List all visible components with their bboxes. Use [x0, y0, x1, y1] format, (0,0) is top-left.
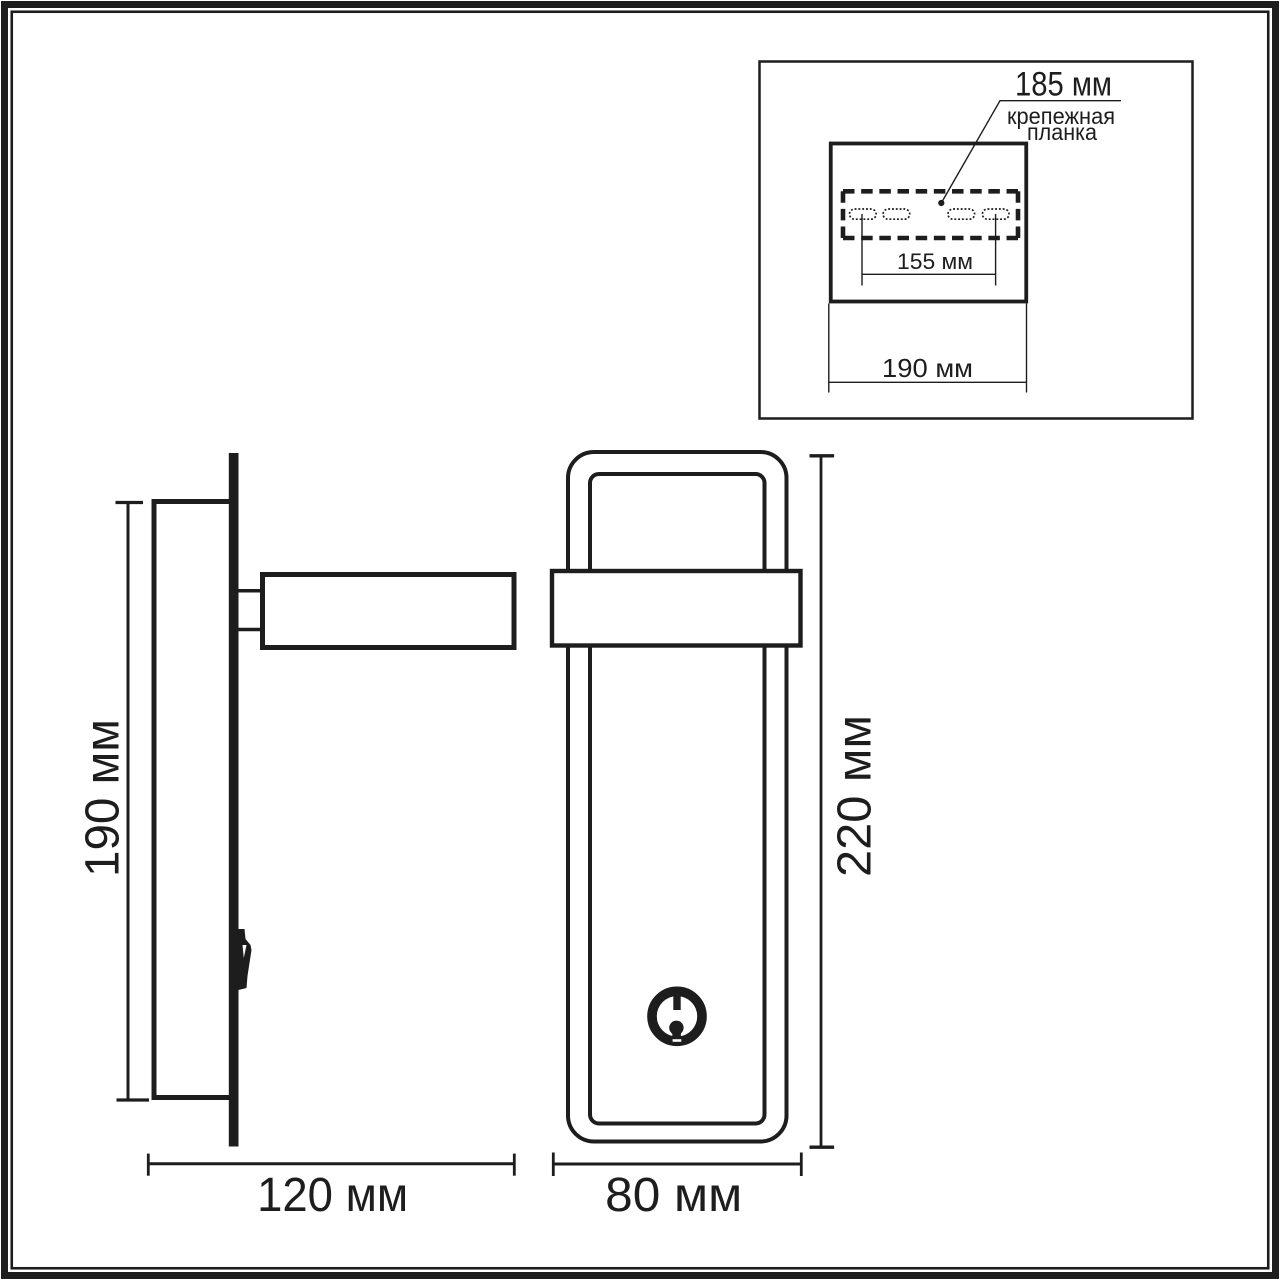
- svg-text:190 мм: 190 мм: [882, 353, 973, 383]
- svg-text:185 мм: 185 мм: [1015, 66, 1112, 104]
- svg-text:80 мм: 80 мм: [605, 1169, 742, 1222]
- svg-text:планка: планка: [1027, 119, 1097, 145]
- svg-text:155 мм: 155 мм: [897, 249, 973, 274]
- svg-text:220 мм: 220 мм: [829, 715, 882, 877]
- svg-text:190 мм: 190 мм: [77, 719, 130, 877]
- svg-text:120 мм: 120 мм: [257, 1169, 408, 1222]
